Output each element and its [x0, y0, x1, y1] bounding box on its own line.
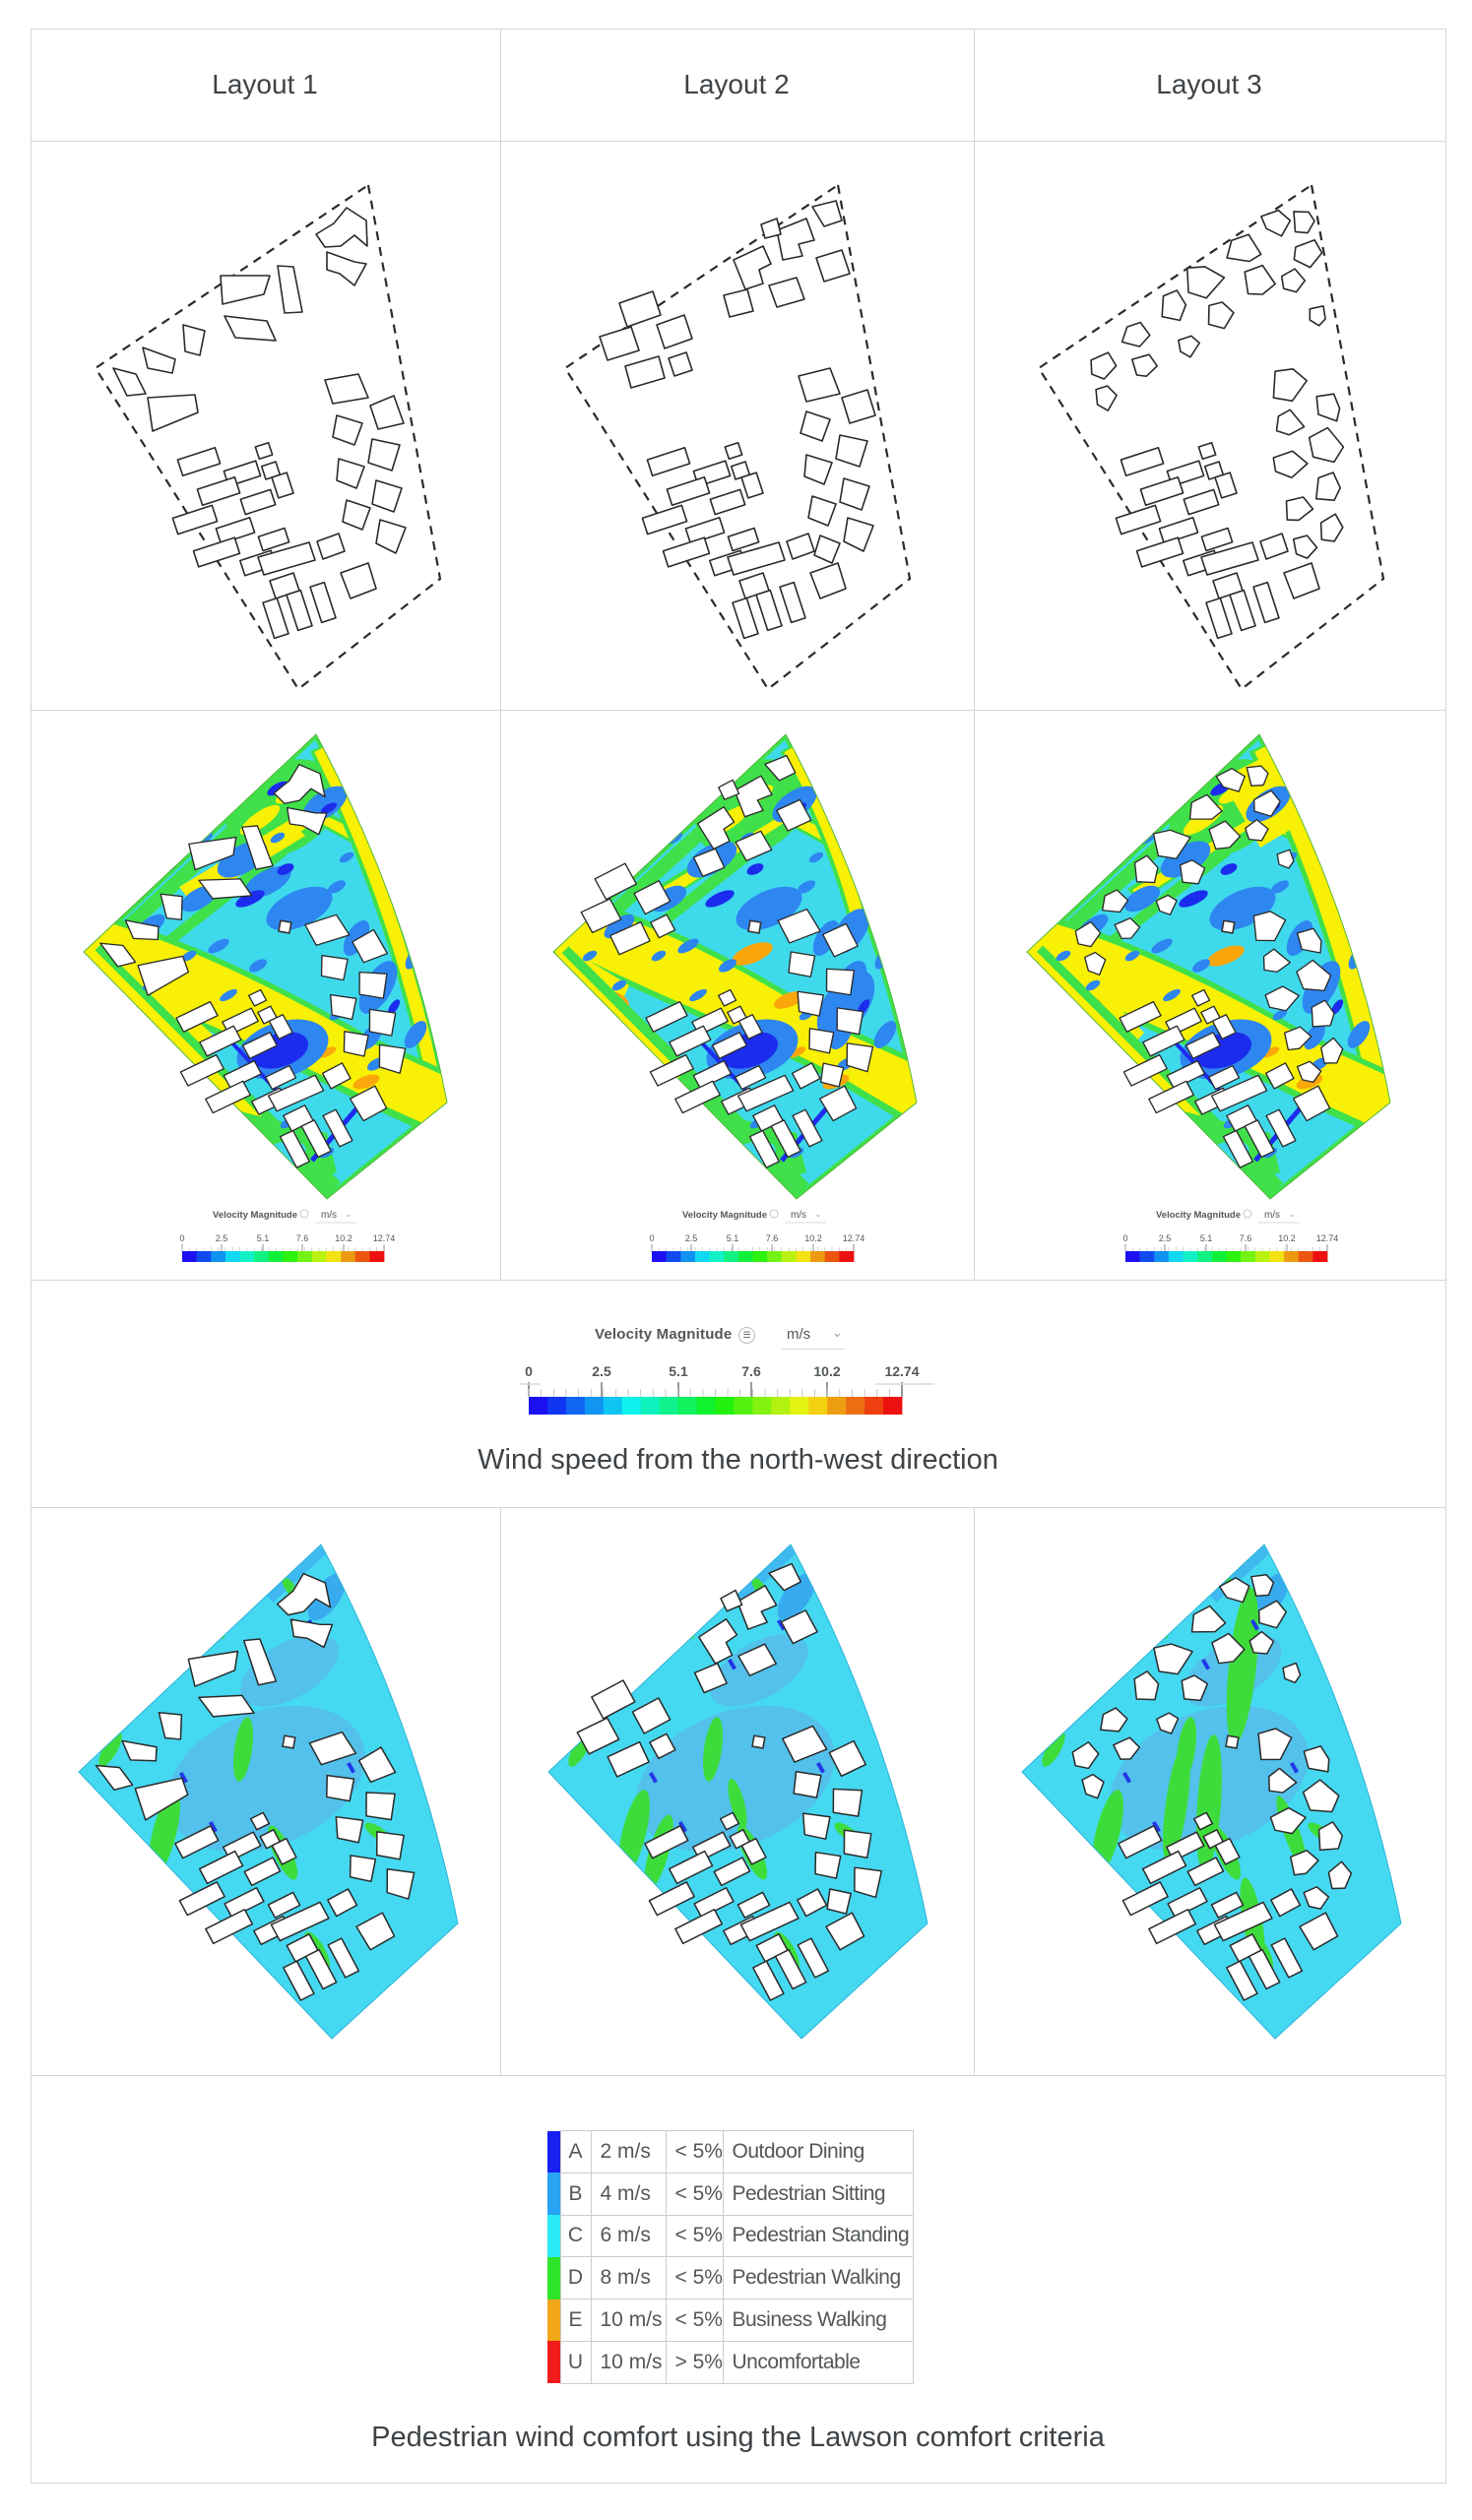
svg-text:Velocity Magnitude: Velocity Magnitude — [682, 1210, 767, 1221]
svg-text:10.2: 10.2 — [813, 1363, 840, 1379]
svg-text:5.1: 5.1 — [669, 1363, 688, 1379]
svg-text:Velocity Magnitude: Velocity Magnitude — [213, 1210, 297, 1221]
svg-text:7.6: 7.6 — [1240, 1233, 1252, 1243]
svg-text:Velocity Magnitude: Velocity Magnitude — [1156, 1210, 1241, 1221]
svg-text:2.5: 2.5 — [592, 1363, 611, 1379]
svg-text:10.2: 10.2 — [335, 1233, 352, 1243]
svg-text:7.6: 7.6 — [766, 1233, 779, 1243]
svg-text:5.1: 5.1 — [727, 1233, 739, 1243]
svg-text:5.1: 5.1 — [257, 1233, 270, 1243]
svg-text:0: 0 — [1122, 1233, 1127, 1243]
svg-text:12.74: 12.74 — [1316, 1233, 1339, 1243]
svg-text:m/s: m/s — [1264, 1210, 1280, 1221]
svg-text:12.74: 12.74 — [884, 1363, 919, 1379]
svg-text:2.5: 2.5 — [216, 1233, 228, 1243]
svg-text:12.74: 12.74 — [843, 1233, 865, 1243]
svg-text:2.5: 2.5 — [1159, 1233, 1172, 1243]
svg-text:5.1: 5.1 — [1200, 1233, 1213, 1243]
svg-text:10.2: 10.2 — [804, 1233, 822, 1243]
svg-text:10.2: 10.2 — [1278, 1233, 1296, 1243]
svg-text:m/s: m/s — [321, 1210, 337, 1221]
svg-text:⌄: ⌄ — [815, 1210, 822, 1219]
svg-text:⌄: ⌄ — [346, 1210, 352, 1219]
svg-text:0: 0 — [179, 1233, 184, 1243]
svg-text:0: 0 — [525, 1363, 533, 1379]
svg-text:7.6: 7.6 — [741, 1363, 761, 1379]
svg-text:0: 0 — [649, 1233, 654, 1243]
svg-text:m/s: m/s — [791, 1210, 806, 1221]
svg-text:⌄: ⌄ — [1289, 1210, 1296, 1219]
svg-text:7.6: 7.6 — [296, 1233, 309, 1243]
svg-text:2.5: 2.5 — [685, 1233, 698, 1243]
svg-text:12.74: 12.74 — [373, 1233, 396, 1243]
